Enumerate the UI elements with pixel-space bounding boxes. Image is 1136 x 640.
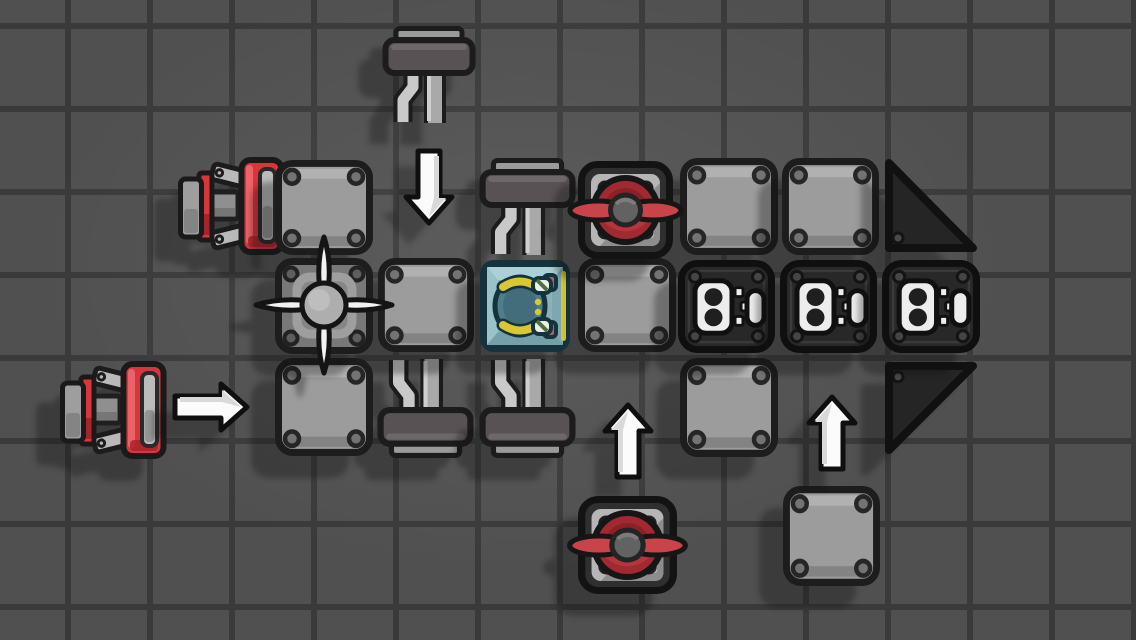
game-canvas bbox=[0, 0, 1136, 640]
hint-arrow-up-1[interactable] bbox=[602, 402, 654, 478]
hint-arrow-down[interactable] bbox=[403, 150, 455, 226]
connector-block-3[interactable] bbox=[882, 260, 980, 353]
armor-plate-r1c6[interactable] bbox=[782, 158, 879, 255]
red-thruster-loose-bottom[interactable] bbox=[60, 360, 168, 460]
propeller-engine-bottom[interactable] bbox=[578, 496, 677, 594]
red-thruster-top[interactable] bbox=[178, 156, 286, 256]
armor-plate-r1c5[interactable] bbox=[680, 158, 778, 255]
connector-block-1[interactable] bbox=[678, 260, 775, 353]
armor-plate-r2c4[interactable] bbox=[578, 258, 676, 352]
connector-block-2[interactable] bbox=[780, 260, 877, 353]
hint-arrow-up-2[interactable] bbox=[806, 394, 858, 470]
suspension-mount-below-cockpit[interactable] bbox=[480, 356, 575, 458]
hint-arrow-right[interactable] bbox=[174, 381, 250, 433]
suspension-mount-below-left[interactable] bbox=[378, 356, 473, 458]
intake-fan[interactable] bbox=[275, 258, 373, 354]
propeller-engine-top[interactable] bbox=[578, 161, 673, 259]
triangle-armor-top[interactable] bbox=[882, 158, 980, 255]
triangle-armor-bottom[interactable] bbox=[882, 360, 980, 456]
suspension-mount-loose-top[interactable] bbox=[383, 26, 475, 126]
armor-plate-r4c6[interactable] bbox=[783, 486, 880, 586]
armor-plate-r3c5[interactable] bbox=[680, 358, 778, 457]
suspension-mount-above-cockpit[interactable] bbox=[480, 158, 575, 258]
cockpit-with-pilot[interactable] bbox=[480, 260, 570, 352]
